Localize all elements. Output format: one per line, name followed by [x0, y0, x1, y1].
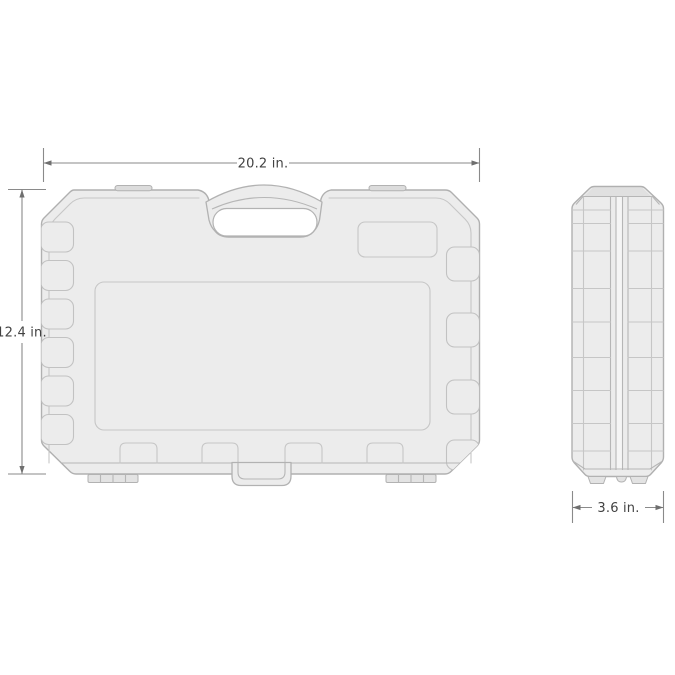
depth-arrow-left: [573, 505, 581, 510]
height-arrow-top: [19, 190, 24, 198]
tool-case-diagram: 20.2 in. 12.4 in. 3.6 in.: [0, 0, 675, 675]
hinge-left: [88, 475, 138, 483]
front-view: [41, 185, 480, 486]
top-edge-tab-left: [115, 186, 152, 191]
width-arrow-left: [44, 160, 52, 165]
height-arrow-bottom: [19, 466, 24, 474]
width-arrow-right: [472, 160, 480, 165]
handle-cutout: [213, 209, 317, 237]
height-dimension: 12.4 in.: [0, 190, 47, 475]
depth-arrow-right: [656, 505, 664, 510]
case-feet: [588, 477, 648, 484]
width-dimension: 20.2 in.: [44, 148, 480, 182]
depth-dimension: 3.6 in.: [573, 491, 664, 523]
hinge-right: [386, 475, 436, 483]
height-label: 12.4 in.: [0, 326, 47, 341]
width-label: 20.2 in.: [238, 157, 289, 172]
diagram-canvas: 20.2 in. 12.4 in. 3.6 in.: [0, 0, 675, 675]
center-channel: [616, 197, 623, 470]
side-view: [572, 187, 664, 484]
top-edge-tab-right: [369, 186, 406, 191]
depth-label: 3.6 in.: [597, 501, 639, 516]
center-latch: [232, 463, 291, 486]
